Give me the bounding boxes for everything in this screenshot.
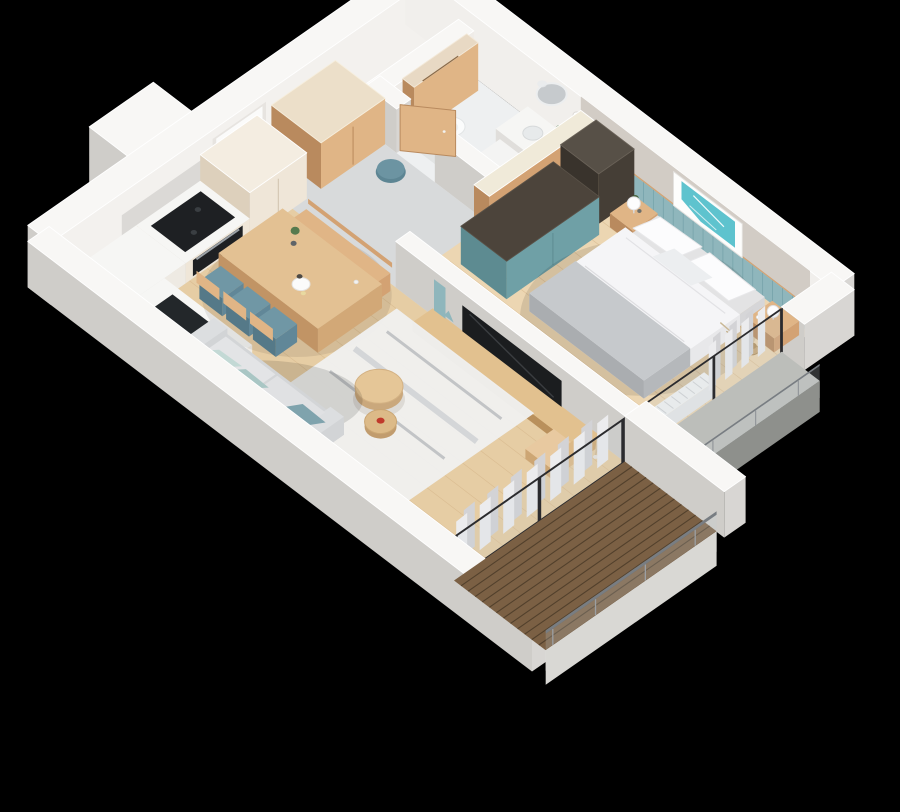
- sliding-door-post: [538, 476, 542, 523]
- cooktop-burner: [195, 207, 201, 212]
- tray-plate: [297, 274, 303, 278]
- cooktop-burner: [191, 230, 197, 235]
- plant-pot: [637, 209, 641, 213]
- vanity-sink: [523, 126, 543, 140]
- apartment-3d-cutaway: [0, 0, 900, 812]
- mirror-highlight: [537, 80, 547, 87]
- table-plant-pot: [291, 241, 297, 246]
- serving-tray: [292, 278, 310, 291]
- bathroom-door-handle: [443, 130, 446, 133]
- teal-pouf-top: [377, 159, 405, 179]
- coffee-decor: [377, 418, 385, 424]
- sphere-lamp-left: [627, 197, 640, 210]
- render-viewport: [0, 0, 900, 812]
- tray-plate-2: [301, 291, 306, 295]
- bedroom-window-post: [713, 355, 716, 401]
- sliding-door-post: [621, 418, 625, 464]
- table-cup: [354, 280, 358, 284]
- table-plant: [291, 227, 300, 235]
- bedroom-window-post: [780, 308, 783, 354]
- bathroom-door: [400, 105, 456, 157]
